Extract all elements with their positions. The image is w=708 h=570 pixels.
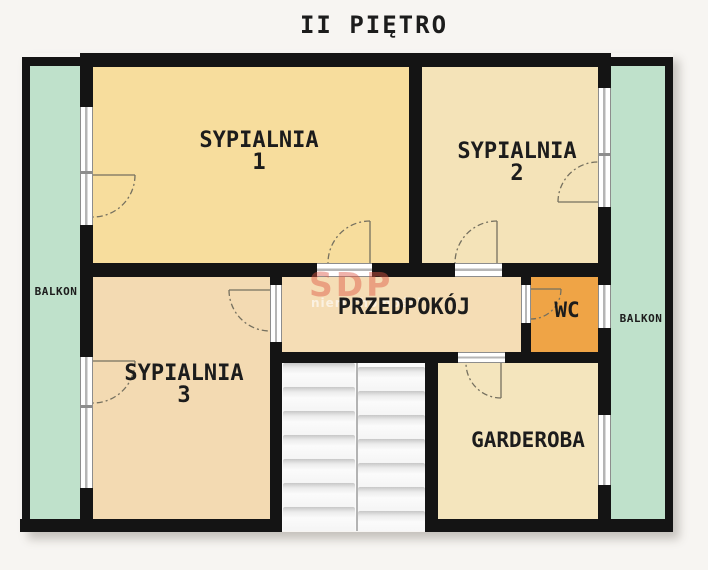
stair-step bbox=[358, 439, 425, 463]
label-sypialnia-2: SYPIALNIA 2 bbox=[457, 141, 576, 185]
stair-step bbox=[358, 367, 425, 391]
window-garderoba bbox=[598, 415, 611, 485]
stair-flight-right bbox=[358, 367, 425, 531]
label-balkon-right: BALKON bbox=[620, 308, 663, 330]
label-przedpokoj: PRZEDPOKÓJ bbox=[338, 297, 470, 319]
wall-balkon-left-outer bbox=[22, 57, 30, 532]
room-number: 1 bbox=[199, 152, 318, 174]
window-wc bbox=[598, 285, 611, 328]
window-door-sypialnia2-balkon bbox=[598, 88, 611, 207]
stair-step bbox=[358, 487, 425, 511]
stair-step bbox=[358, 415, 425, 439]
stair-step bbox=[283, 507, 355, 531]
floor-plan-page: { "title": "II PIĘTRO", "floor_plan": { … bbox=[0, 0, 708, 570]
label-sypialnia-3: SYPIALNIA 3 bbox=[124, 363, 243, 407]
window-junction-tick bbox=[80, 171, 93, 174]
door-opening-sypialnia2 bbox=[455, 263, 502, 277]
stair-step bbox=[358, 463, 425, 487]
wall-balkon-left-top bbox=[22, 57, 80, 66]
stair-step bbox=[283, 363, 355, 387]
room-name: SYPIALNIA bbox=[199, 130, 318, 152]
wall-garderoba-left bbox=[425, 352, 438, 532]
page-title: II PIĘTRO bbox=[300, 11, 448, 39]
wall-lower bbox=[270, 352, 611, 363]
stair-flight-divider bbox=[356, 363, 358, 531]
label-sypialnia-1: SYPIALNIA 1 bbox=[199, 130, 318, 174]
stair-step bbox=[358, 391, 425, 415]
wall-bottom-left bbox=[20, 519, 282, 532]
wall-sypialnia1-2 bbox=[409, 67, 422, 277]
stairs bbox=[282, 363, 425, 531]
stair-step bbox=[283, 483, 355, 507]
door-opening-wc bbox=[521, 285, 531, 323]
wall-balkon-right-top bbox=[611, 57, 673, 66]
label-balkon-left: BALKON bbox=[35, 281, 78, 303]
window-junction-tick bbox=[80, 405, 93, 408]
room-number: 2 bbox=[457, 163, 576, 185]
label-garderoba: GARDEROBA bbox=[471, 429, 585, 451]
room-name: SYPIALNIA bbox=[124, 363, 243, 385]
stair-step bbox=[283, 387, 355, 411]
stair-flight-left bbox=[283, 363, 355, 531]
wall-bottom-right bbox=[438, 519, 673, 532]
stair-step bbox=[283, 459, 355, 483]
stair-step bbox=[283, 435, 355, 459]
room-name: SYPIALNIA bbox=[457, 141, 576, 163]
wall-top bbox=[80, 53, 611, 67]
door-opening-sypialnia3 bbox=[270, 285, 282, 342]
window-door-sypialnia3-balkon bbox=[80, 357, 93, 488]
wall-balkon-right-outer bbox=[665, 57, 673, 532]
floor-balkon-right bbox=[611, 62, 665, 519]
door-opening-garderoba bbox=[458, 352, 505, 363]
window-door-sypialnia1-balkon bbox=[80, 107, 93, 225]
stair-step bbox=[283, 411, 355, 435]
window-junction-tick bbox=[598, 153, 611, 156]
label-wc: WC bbox=[554, 299, 579, 321]
stair-step bbox=[358, 511, 425, 531]
room-number: 3 bbox=[124, 385, 243, 407]
